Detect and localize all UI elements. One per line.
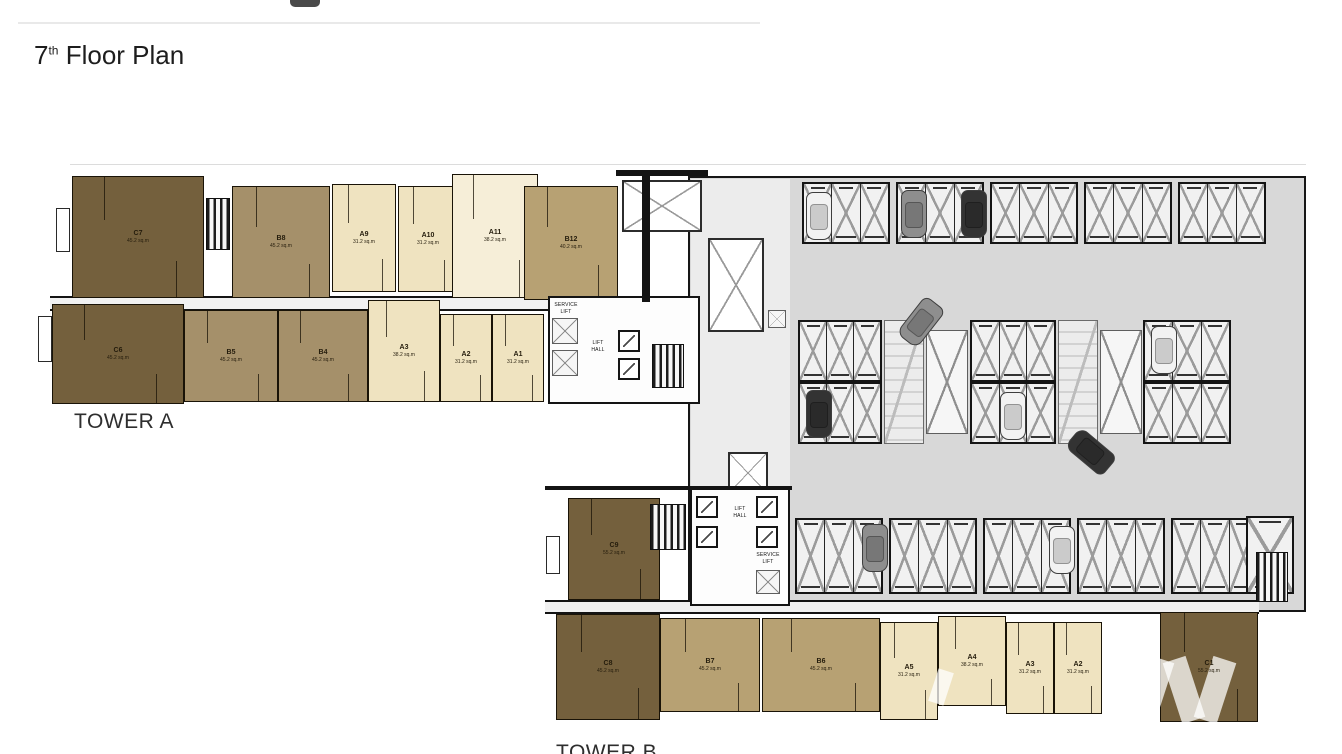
wall-segment <box>642 176 650 302</box>
unit-label: A231.2 sq.m <box>455 351 477 366</box>
unit-B-B7: B745.2 sq.m <box>660 618 760 712</box>
elevator-icon <box>696 526 718 548</box>
unit-label: C645.2 sq.m <box>107 347 129 362</box>
parking-stall <box>1013 520 1041 592</box>
unit-A-A3: A338.2 sq.m <box>368 300 440 402</box>
parking-stall <box>985 520 1013 592</box>
floor-plan-page: 7th Floor Plan C745.2 sq.mB845.2 sq.mA93… <box>0 0 1342 754</box>
car-icon <box>1000 392 1026 440</box>
car-icon <box>1049 526 1075 574</box>
unit-label: A531.2 sq.m <box>898 664 920 679</box>
unit-label: B545.2 sq.m <box>220 349 242 364</box>
car-icon <box>901 190 927 238</box>
parking-stall <box>1237 184 1264 242</box>
parking-stall <box>797 520 825 592</box>
elevator-icon <box>756 496 778 518</box>
unit-A-B4: B445.2 sq.m <box>278 310 368 402</box>
stairs-icon <box>1256 552 1288 602</box>
parking-stall <box>1208 184 1236 242</box>
unit-A-A1: A131.2 sq.m <box>492 314 544 402</box>
shaft-void <box>622 180 702 232</box>
stairs-icon <box>206 198 230 250</box>
parking-stall <box>825 520 853 592</box>
parking-stall <box>1114 184 1142 242</box>
parking-stall <box>861 184 888 242</box>
corridor <box>545 600 1259 614</box>
parking-stall <box>1173 384 1201 442</box>
parking-stall <box>1202 322 1229 380</box>
unit-label: A438.2 sq.m <box>961 654 983 669</box>
car-icon <box>961 190 987 238</box>
unit-A-B12: B1240.2 sq.m <box>524 186 618 300</box>
parking-stall <box>948 520 975 592</box>
ramp-cross-box <box>926 330 968 434</box>
unit-label: B745.2 sq.m <box>699 658 721 673</box>
unit-label: A131.2 sq.m <box>507 351 529 366</box>
parking-stall <box>1027 384 1054 442</box>
parking-stall <box>919 520 947 592</box>
unit-label: B1240.2 sq.m <box>560 236 582 251</box>
ramp-cross-box <box>1100 330 1142 434</box>
unit-A-A10: A1031.2 sq.m <box>398 186 458 292</box>
elevator-icon <box>696 496 718 518</box>
parking-stall <box>926 184 954 242</box>
parking-stall <box>1173 520 1201 592</box>
parking-stall <box>972 384 1000 442</box>
parking-stall-group <box>970 320 1056 382</box>
parking-stall-group <box>1077 518 1165 594</box>
unit-label: A1138.2 sq.m <box>484 229 506 244</box>
tower-a-label: TOWER A <box>74 410 174 434</box>
parking-stall <box>992 184 1020 242</box>
unit-label: B445.2 sq.m <box>312 349 334 364</box>
lift-shaft-box <box>552 350 578 376</box>
parking-stall-group <box>1143 382 1231 444</box>
car-icon <box>806 192 832 240</box>
unit-label: A931.2 sq.m <box>353 231 375 246</box>
service-lift-label: SERVICE LIFT <box>544 302 588 316</box>
unit-B-A2: A231.2 sq.m <box>1054 622 1102 714</box>
unit-A-B5: B545.2 sq.m <box>184 310 278 402</box>
parking-stall <box>1107 520 1135 592</box>
lift-shaft-box <box>756 570 780 594</box>
plan-frame-line <box>70 164 1306 165</box>
unit-B-A3: A331.2 sq.m <box>1006 622 1054 714</box>
elevator-icon <box>756 526 778 548</box>
unit-label: C845.2 sq.m <box>597 660 619 675</box>
parking-stall <box>1079 520 1107 592</box>
parking-stall <box>891 520 919 592</box>
unit-B-C9: C955.2 sq.m <box>568 498 660 600</box>
parking-stall-group <box>990 182 1078 244</box>
unit-label: C155.2 sq.m <box>1198 660 1220 675</box>
parking-stall-group <box>798 320 882 382</box>
unit-B-A4: A438.2 sq.m <box>938 616 1006 706</box>
balcony <box>38 316 52 362</box>
parking-stall <box>832 184 860 242</box>
car-icon <box>1151 326 1177 374</box>
elevator-icon <box>618 330 640 352</box>
parking-stall-group <box>889 518 977 594</box>
tower-b-label: TOWER B <box>556 741 657 754</box>
parking-stall-group <box>1084 182 1172 244</box>
lift-shaft-box <box>768 310 786 328</box>
parking-stall <box>1173 322 1201 380</box>
parking-stall <box>1000 322 1028 380</box>
unit-A-C7: C745.2 sq.m <box>72 176 204 298</box>
car-icon <box>862 524 888 572</box>
lift-shaft-box <box>552 318 578 344</box>
parking-stall <box>1145 384 1173 442</box>
parking-stall <box>1049 184 1076 242</box>
lift-hall-label: LIFT HALL <box>722 506 758 520</box>
unit-label: A338.2 sq.m <box>393 344 415 359</box>
unit-B-C8: C845.2 sq.m <box>556 614 660 720</box>
service-lift-label: SERVICE LIFT <box>746 552 790 566</box>
unit-label: C955.2 sq.m <box>603 542 625 557</box>
unit-B-B6: B645.2 sq.m <box>762 618 880 712</box>
parking-stall <box>1180 184 1208 242</box>
unit-A-A9: A931.2 sq.m <box>332 184 396 292</box>
unit-label: B645.2 sq.m <box>810 658 832 673</box>
parking-stall <box>827 322 854 380</box>
unit-label: A231.2 sq.m <box>1067 661 1089 676</box>
parking-stall <box>1027 322 1054 380</box>
unit-A-A2: A231.2 sq.m <box>440 314 492 402</box>
stairs-icon <box>650 504 686 550</box>
stairs-icon <box>652 344 684 388</box>
parking-stall <box>854 322 880 380</box>
wall-segment <box>616 170 708 176</box>
parking-stall <box>1143 184 1170 242</box>
parking-ramp <box>1058 320 1098 444</box>
unit-B-A5: A531.2 sq.m <box>880 622 938 720</box>
parking-stall <box>1202 384 1229 442</box>
parking-stall-group <box>1178 182 1266 244</box>
unit-A-B8: B845.2 sq.m <box>232 186 330 298</box>
parking-stall <box>800 322 827 380</box>
parking-stall <box>1086 184 1114 242</box>
unit-label: A331.2 sq.m <box>1019 661 1041 676</box>
lift-hall-label: LIFT HALL <box>580 340 616 354</box>
balcony <box>546 536 560 574</box>
car-icon <box>806 390 832 438</box>
wall-segment <box>545 486 792 490</box>
parking-stall <box>1136 520 1163 592</box>
parking-stall <box>854 384 880 442</box>
elevator-icon <box>618 358 640 380</box>
balcony <box>56 208 70 252</box>
floor-plan-drawing: C745.2 sq.mB845.2 sq.mA931.2 sq.mA1031.2… <box>0 0 1342 754</box>
unit-label: C745.2 sq.m <box>127 230 149 245</box>
shaft-void <box>708 238 764 332</box>
unit-A-C6: C645.2 sq.m <box>52 304 184 404</box>
parking-stall <box>1020 184 1048 242</box>
parking-stall <box>1201 520 1229 592</box>
parking-stall <box>972 322 1000 380</box>
unit-label: B845.2 sq.m <box>270 235 292 250</box>
unit-label: A1031.2 sq.m <box>417 232 439 247</box>
